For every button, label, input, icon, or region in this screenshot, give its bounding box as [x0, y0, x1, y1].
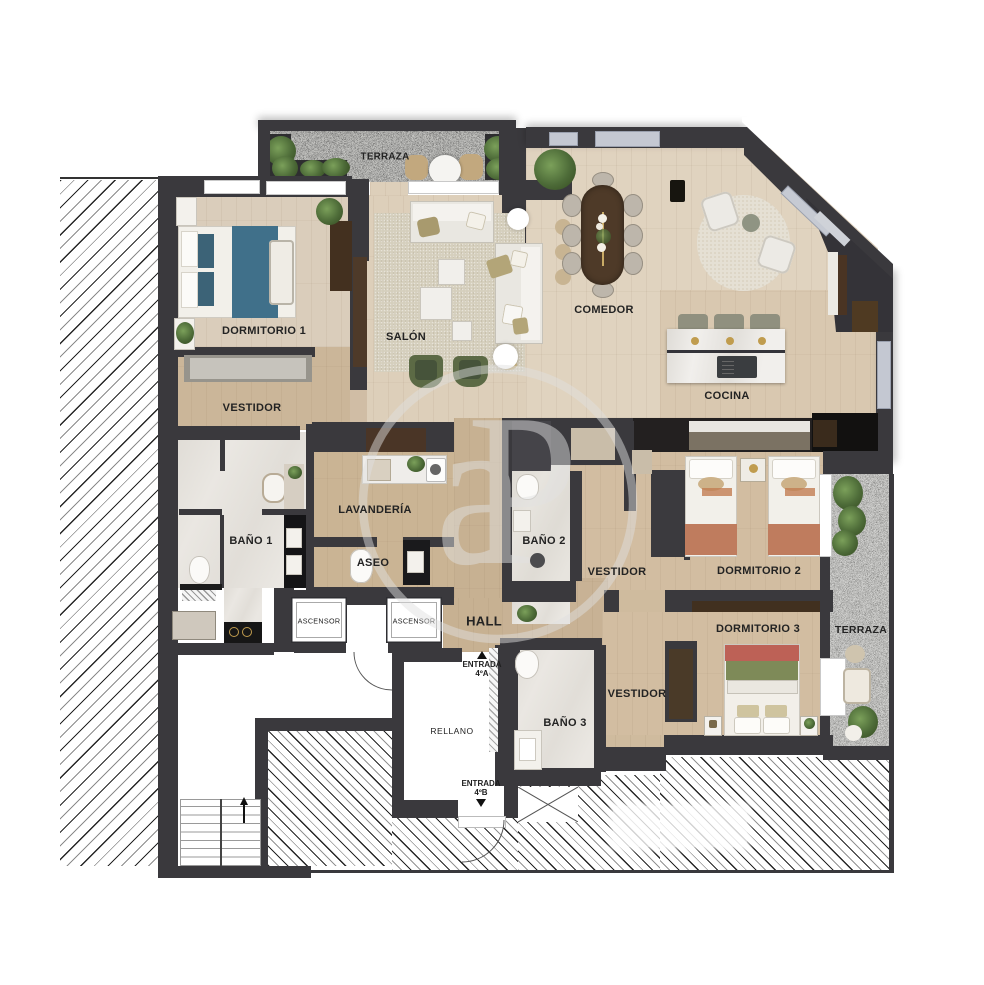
svg-text:P: P [467, 369, 579, 610]
